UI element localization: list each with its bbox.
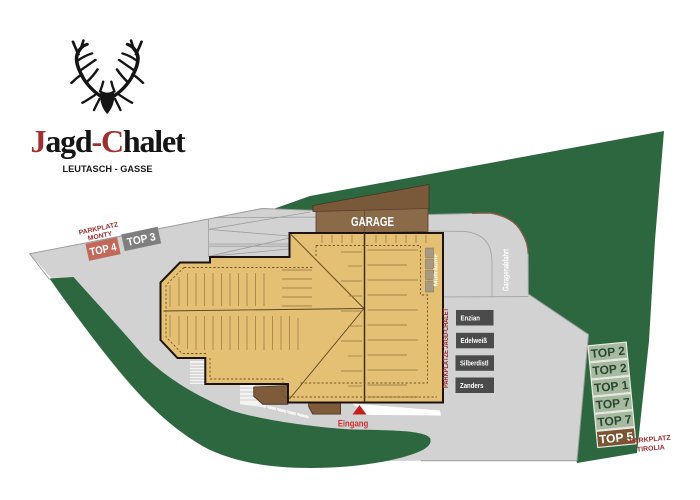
svg-text:Eingang: Eingang xyxy=(338,419,369,430)
svg-text:Enzian: Enzian xyxy=(461,313,481,322)
svg-text:GARAGE: GARAGE xyxy=(351,215,394,229)
svg-text:Zanders: Zanders xyxy=(460,381,484,390)
svg-text:Müllräume: Müllräume xyxy=(434,254,440,286)
svg-text:Jagd-Chalet: Jagd-Chalet xyxy=(31,123,186,159)
svg-text:Edelweiß: Edelweiß xyxy=(461,336,488,345)
svg-text:Silberdistl: Silberdistl xyxy=(460,359,489,368)
svg-text:PARKPLÄTZE JAGD-CHALET: PARKPLÄTZE JAGD-CHALET xyxy=(441,308,450,388)
svg-text:LEUTASCH - GASSE: LEUTASCH - GASSE xyxy=(63,164,153,174)
svg-text:Garagenabfahrt: Garagenabfahrt xyxy=(502,249,511,291)
svg-text:TIROLIA: TIROLIA xyxy=(637,444,666,453)
